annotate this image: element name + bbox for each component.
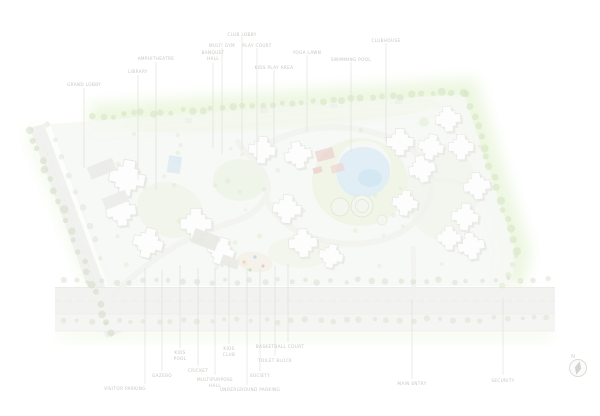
main-road: [55, 287, 555, 314]
plan-label-swimming-pool: SWIMMING POOL: [331, 57, 371, 63]
plan-label-yoga-lawn: YOGA LAWN: [293, 50, 322, 56]
plan-label-clubhouse: CLUBHOUSE: [372, 38, 401, 44]
compass-north-label: N: [571, 354, 575, 360]
plan-label-cricket: CRICKET: [188, 368, 208, 374]
plan-label-gazebo: GAZEBO: [152, 373, 172, 379]
site-plan-page: N GRAND LOBBY LIBRARY AMPHITHEATRE BANQU…: [0, 0, 600, 416]
plan-label-club-lobby: CLUB LOBBY: [227, 32, 256, 38]
plan-label-kids-pool: KIDS POOL: [174, 350, 187, 362]
plan-label-visitor-parking: VISITOR PARKING: [104, 386, 146, 392]
plan-label-grand-lobby: GRAND LOBBY: [67, 82, 101, 88]
plan-label-multi-gym: MULTI GYM: [209, 43, 235, 49]
site-plan-drawing: N: [0, 0, 600, 416]
plan-label-kids-club: KIDS CLUB: [223, 346, 235, 358]
plan-label-kids-play-area: KIDS PLAY AREA: [255, 65, 294, 71]
plan-label-banquet-hall: BANQUET HALL: [202, 50, 225, 62]
plan-label-play-court: PLAY COURT: [242, 43, 271, 49]
plan-label-amphitheatre: AMPHITHEATRE: [138, 56, 175, 62]
plan-label-toilet-block: TOILET BLOCK: [258, 358, 292, 364]
plan-label-basketball-court: BASKETBALL COURT: [256, 344, 304, 350]
plan-label-library: LIBRARY: [128, 69, 148, 75]
north-compass-icon: N: [570, 354, 587, 377]
plan-label-main-entry: MAIN ENTRY: [397, 381, 426, 387]
plan-label-society: SOCIETY: [250, 373, 270, 379]
plan-label-underground-parking: UNDERGROUND PARKING: [220, 387, 280, 393]
plan-label-security: SECURITY: [491, 378, 514, 384]
